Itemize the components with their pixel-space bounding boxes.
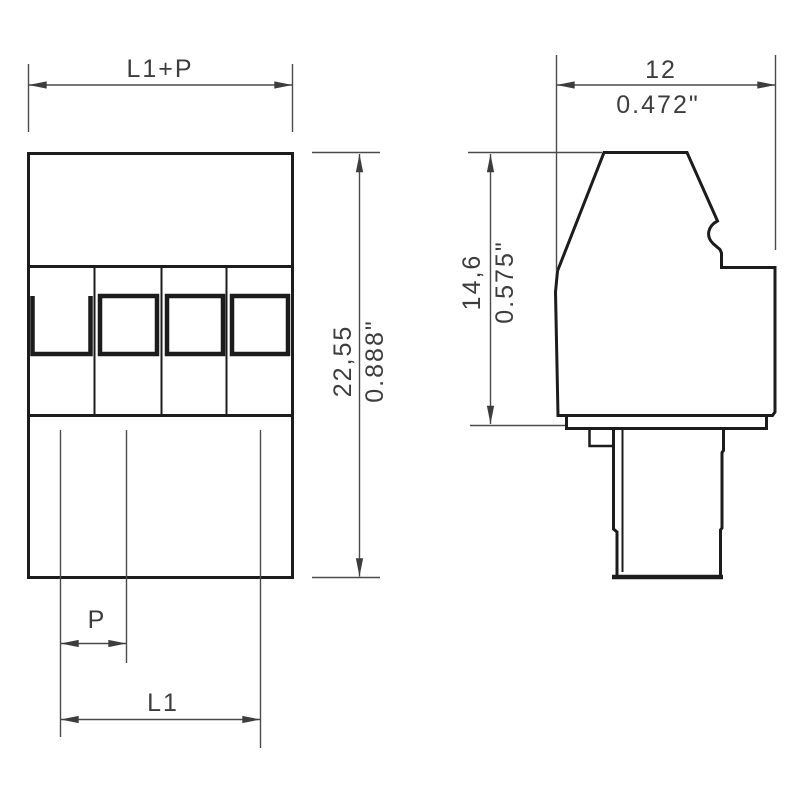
dim-side-height-inch-label: 0.575" [491,240,519,323]
dim-height-inch-label: 0.888" [361,319,389,402]
dim-width-mm-label: 12 [645,56,677,84]
dim-l1p: L1+P [29,55,293,132]
technical-drawing: L1+P 22,55 0.888" P L1 [0,0,800,800]
dim-height-mm-label: 22,55 [329,325,357,398]
dim-side-height-mm-label: 14,6 [458,254,486,311]
side-flange [567,416,767,429]
front-view: L1+P 22,55 0.888" P L1 [29,55,390,748]
dim-pitch: P [61,606,127,644]
dim-l1p-label: L1+P [126,55,193,83]
dim-l1-label: L1 [147,689,179,717]
side-profile-outline [556,153,776,416]
dim-width-inch-label: 0.472" [616,91,699,119]
side-step [590,429,614,447]
dim-pitch-label: P [88,606,107,634]
side-plug-left-edge [614,429,618,576]
side-view: 12 0.472" 14,6 0.575" [458,55,776,577]
side-plug-right-edge [721,429,724,576]
dim-l1: L1 [61,689,261,720]
dim-height: 22,55 0.888" [312,153,389,578]
